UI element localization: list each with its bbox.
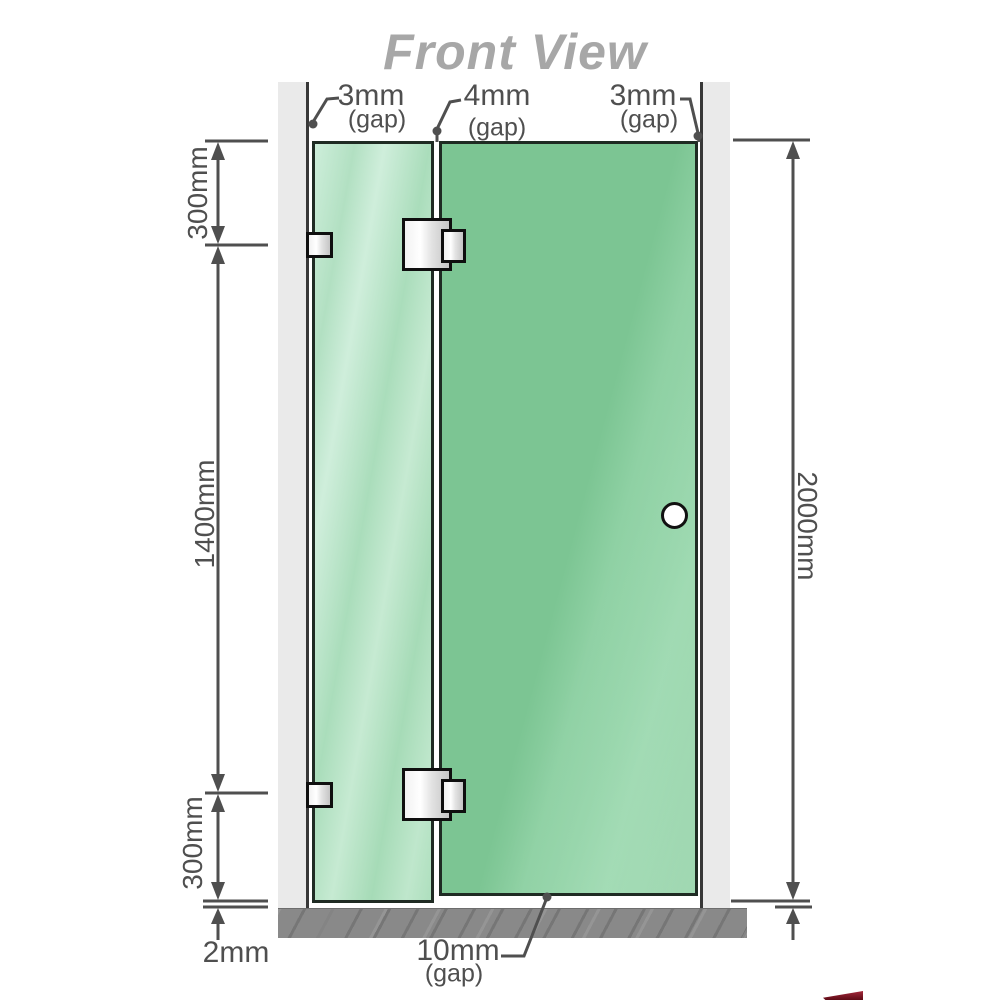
- door-handle-knob: [661, 502, 688, 529]
- hinge-top-plate-small: [441, 229, 466, 263]
- page-title: Front View: [383, 23, 647, 81]
- hinge-bottom-plate-small: [441, 779, 466, 813]
- gap-label-top-right-suffix: (gap): [620, 106, 678, 135]
- left-wall: [278, 82, 309, 908]
- right-wall: [700, 82, 730, 908]
- gap-label-top-left-suffix: (gap): [348, 106, 406, 135]
- dimension-total-height: 2000mm: [791, 472, 823, 581]
- cropped-logo-sliver: [823, 991, 863, 1000]
- dimension-left-top: 300mm: [182, 146, 214, 239]
- dimension-left-middle: 1400mm: [189, 460, 221, 569]
- gap-label-top-middle-suffix: (gap): [468, 114, 526, 143]
- dimension-floor-clearance: 2mm: [203, 936, 270, 970]
- wall-bracket-bottom: [306, 782, 333, 808]
- door-panel-glass: [439, 141, 698, 896]
- floor-base: [278, 908, 747, 938]
- gap-label-bottom-suffix: (gap): [425, 960, 483, 989]
- dimension-left-bottom: 300mm: [177, 796, 209, 889]
- gap-label-top-middle-value: 4mm: [464, 79, 531, 113]
- front-view-diagram: Front View: [0, 0, 1000, 1000]
- wall-bracket-top: [306, 232, 333, 258]
